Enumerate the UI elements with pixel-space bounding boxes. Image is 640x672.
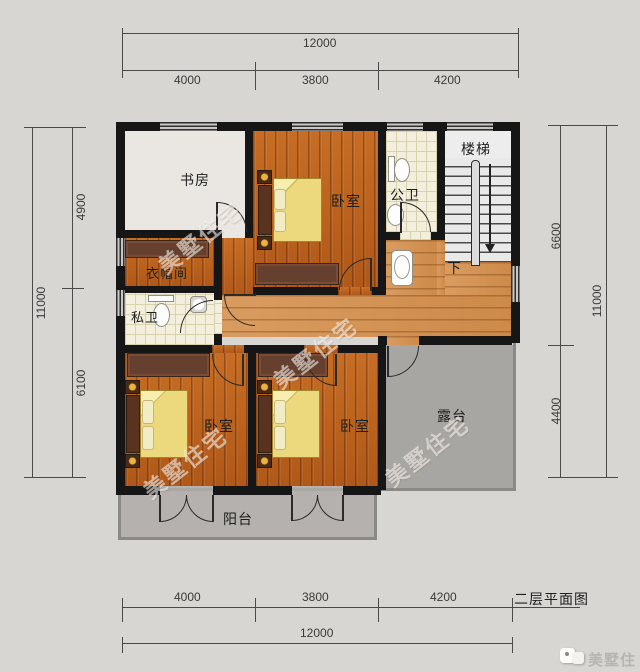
dim-tick (122, 28, 123, 78)
dim-bottom-seg1: 4000 (174, 590, 201, 604)
nightstand (257, 380, 272, 394)
hall-floor (222, 238, 253, 295)
dim-bottom-seg2: 3800 (302, 590, 329, 604)
balcony-parapet-bottom (118, 537, 377, 540)
dim-line (122, 70, 518, 71)
public-bath-door-leaf (400, 202, 402, 233)
wall-study-bottom (246, 230, 253, 238)
dim-tick (255, 598, 256, 622)
window (511, 266, 520, 302)
dim-tick (122, 598, 123, 622)
dim-tick (122, 637, 123, 653)
room-label-bedroom-top: 卧室 (331, 191, 361, 211)
pillow (274, 211, 286, 232)
bed (257, 170, 323, 250)
nightstand (257, 170, 272, 184)
dim-right-seg2: 4400 (549, 393, 563, 429)
stair-rail (471, 160, 480, 266)
bed-headboard (258, 395, 272, 453)
dim-tick (378, 62, 379, 90)
door-opening (212, 345, 244, 353)
label-stairs-down: 下 (447, 258, 462, 278)
wall-bottom (213, 486, 292, 495)
logo-text: 美墅住宅 (588, 649, 640, 672)
corridor-floor (222, 295, 512, 337)
bed-headboard (126, 395, 140, 453)
window (116, 238, 125, 266)
room-label-bedroom-mid: 卧室 (340, 416, 370, 436)
bedroom-mid-door-leaf (335, 354, 337, 386)
dim-line (72, 127, 73, 478)
dim-line (606, 125, 607, 478)
dim-left-seg1: 4900 (74, 189, 88, 225)
room-label-study: 书房 (180, 170, 210, 190)
bedroom-top-wardrobe (255, 263, 339, 285)
wall-corridor-terrace (378, 336, 387, 345)
terrace-parapet-right (513, 343, 516, 490)
dim-bottom-total: 12000 (300, 626, 333, 640)
dim-tick (62, 288, 84, 289)
dim-right-seg1: 6600 (549, 218, 563, 254)
stair-direction-arrowhead (485, 244, 495, 253)
wall-bedroom-top-right (378, 122, 386, 295)
balcony-parapet-left (118, 495, 121, 540)
wall-public-bath-bottom (378, 232, 400, 240)
dim-tick (518, 28, 519, 78)
pillow (142, 400, 154, 424)
dim-tick (548, 477, 618, 478)
door-sill (292, 488, 343, 491)
toilet-icon (148, 295, 174, 302)
dim-tick (24, 127, 86, 128)
wall-hall-left (214, 334, 222, 345)
window (447, 122, 493, 131)
room-label-public-bath: 公卫 (390, 185, 420, 205)
dim-line (122, 33, 518, 34)
nightstand (257, 454, 272, 468)
terrace-door-leaf (387, 346, 389, 377)
dim-line (32, 127, 33, 478)
wall-bottom (343, 486, 381, 495)
bedroom-left-wardrobe (127, 353, 210, 377)
dim-tick (512, 637, 513, 653)
dim-tick (255, 62, 256, 90)
door-opening (214, 300, 222, 334)
dim-tick (378, 598, 379, 622)
bedroom-left-door-leaf (242, 354, 244, 386)
dim-left-seg2: 6100 (74, 365, 88, 401)
bed (257, 380, 321, 468)
bed-headboard (258, 185, 272, 235)
pillow (142, 426, 154, 450)
wall-corridor-bottom (116, 345, 212, 353)
pillow (274, 426, 286, 450)
pillow (274, 189, 286, 210)
nightstand (125, 380, 140, 394)
dim-top-total: 12000 (303, 36, 336, 50)
pillow (274, 400, 286, 424)
bed-blanket (273, 178, 322, 242)
window (292, 122, 343, 131)
dim-tick (548, 125, 618, 126)
window (387, 122, 423, 131)
wall-outer-right (511, 122, 520, 343)
dim-right-total: 11000 (590, 279, 604, 323)
wall-bath-stairs-divider (437, 122, 445, 240)
door-opening (387, 336, 419, 345)
drawing-title: 二层平面图 (514, 589, 589, 609)
washbasin-bowl (394, 255, 410, 279)
logo-icon (572, 652, 584, 664)
wall-bedrooms-divider (248, 353, 256, 487)
room-label-stairs: 楼梯 (461, 139, 491, 159)
french-door-leaf (291, 495, 293, 521)
dim-bottom-seg3: 4200 (430, 590, 457, 604)
wall-corridor-terrace (419, 336, 512, 345)
door-opening (400, 232, 431, 240)
dim-line (122, 643, 512, 644)
dim-tick (548, 345, 574, 346)
stair-landing-floor (437, 240, 445, 295)
window (160, 122, 217, 131)
floor-plan-canvas: 书房 卧室 公卫 楼梯 下 衣帽间 私卫 卧室 卧室 露台 阳台 12000 4… (0, 0, 640, 672)
logo-icon-dot (565, 652, 569, 656)
hall-door-leaf (224, 294, 256, 296)
toilet-icon (394, 158, 410, 182)
stair-direction-line (489, 164, 491, 246)
bedroom-top-door-leaf (370, 258, 372, 291)
dim-left-total: 11000 (34, 281, 48, 325)
dim-top-seg1: 4000 (174, 73, 201, 87)
wall-bedroom-top-bottom (253, 287, 338, 295)
wall-cloak-bath-divider (116, 286, 214, 293)
balcony-parapet-right (374, 495, 377, 540)
french-door-leaf (212, 495, 214, 522)
french-door-leaf (342, 495, 344, 521)
dim-tick (512, 598, 513, 622)
nightstand (125, 454, 140, 468)
room-label-private-bath: 私卫 (131, 307, 159, 326)
dim-top-seg3: 4200 (434, 73, 461, 87)
dim-top-seg2: 3800 (302, 73, 329, 87)
room-label-balcony: 阳台 (223, 509, 253, 529)
nightstand (257, 236, 272, 250)
dim-tick (24, 477, 86, 478)
window (116, 290, 125, 316)
